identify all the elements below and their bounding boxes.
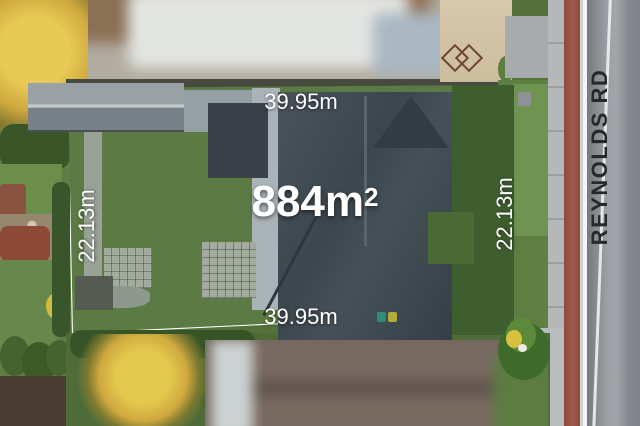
blurred-roof	[0, 376, 70, 426]
boundary-hedge-left	[52, 182, 70, 337]
blurred-house-bottom	[205, 340, 548, 426]
frontage-label-top: 39.95m	[256, 89, 346, 115]
blurred-path	[211, 340, 259, 426]
shed-roof	[28, 83, 184, 132]
utility-box	[518, 92, 531, 106]
blurred-roof	[88, 0, 446, 86]
aerial-photo: 39.95m 39.95m 22.13m 22.13m 884m2 REYNOL…	[0, 0, 640, 426]
blurred-roof-section	[128, 0, 408, 68]
depth-label-right: 22.13m	[492, 177, 518, 250]
roof-hip-facet	[373, 96, 449, 148]
blurred-roof-section	[373, 13, 446, 75]
golden-tree-bottom	[78, 334, 223, 426]
road-shoulder-strip	[564, 0, 580, 426]
lot-courtyard-garden	[428, 212, 474, 264]
footpath-crossing	[505, 16, 551, 78]
area-label: 884m2	[215, 180, 415, 224]
blurred-house-bottom-left	[0, 376, 70, 426]
blurred-roof	[205, 340, 548, 426]
blurred-house-top	[88, 0, 446, 86]
street-name-label: REYNOLDS RD	[587, 69, 613, 246]
area-superscript: 2	[364, 182, 378, 212]
depth-label-left: 22.13m	[74, 189, 100, 262]
mailbox	[518, 344, 527, 352]
wheelie-bin-yellow	[388, 312, 397, 322]
wheelie-bin-teal	[377, 312, 386, 322]
brick-paving-patch	[0, 226, 50, 262]
area-value: 884m	[251, 177, 364, 226]
frontage-label-bottom: 39.95m	[256, 304, 346, 330]
blurred-roof-ridge	[253, 380, 515, 396]
paving-grid	[202, 242, 256, 298]
dark-paved-area	[75, 276, 113, 310]
